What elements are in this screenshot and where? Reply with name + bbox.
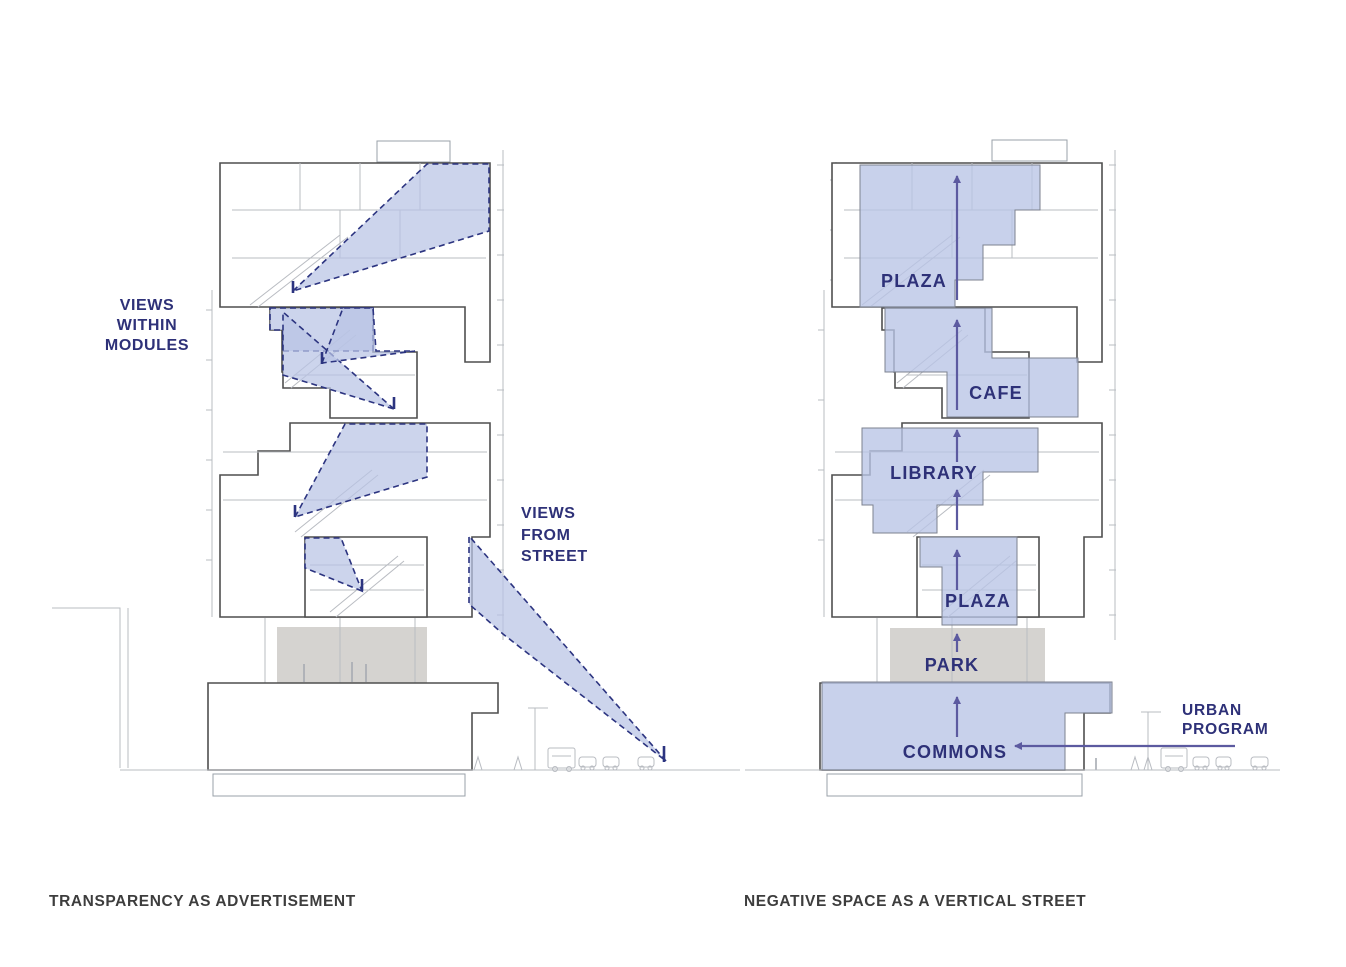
plaza-lower-label: PLAZA (945, 591, 1011, 612)
car-icon (603, 757, 619, 770)
left-diagram-caption: TRANSPARENCY AS ADVERTISEMENT (49, 893, 356, 911)
car-icon (1251, 757, 1268, 770)
tree-icon (1131, 757, 1152, 770)
views-from-street-label: VIEWS FROM STREET (521, 503, 588, 568)
label-line: MODULES (93, 336, 201, 356)
right-diagram-caption: NEGATIVE SPACE AS A VERTICAL STREET (744, 893, 1086, 911)
left-facade-line (206, 290, 212, 617)
car-icon (1216, 757, 1231, 770)
label-line: PROGRAM (1182, 720, 1269, 739)
views-within-modules-label: VIEWS WITHIN MODULES (93, 296, 201, 356)
car-icon (1193, 757, 1209, 770)
library-label: LIBRARY (890, 463, 978, 484)
bus-icon (548, 748, 575, 772)
street-lamp-icon (528, 708, 548, 770)
podium-base (213, 774, 465, 796)
right-facade-ticks (1109, 150, 1116, 640)
tree-icon (474, 757, 522, 770)
label-line: VIEWS (93, 296, 201, 316)
label-line: STREET (521, 546, 588, 568)
label-line: FROM (521, 525, 588, 547)
car-icon (579, 757, 596, 770)
podium-base (827, 774, 1082, 796)
bus-icon (1161, 748, 1187, 772)
label-line: URBAN (1182, 701, 1269, 720)
urban-program-label: URBAN PROGRAM (1182, 701, 1269, 739)
label-line: VIEWS (521, 503, 588, 525)
label-line: WITHIN (93, 316, 201, 336)
cafe-label: CAFE (969, 383, 1023, 404)
roof-head-box (377, 141, 450, 162)
diagram-canvas: VIEWS WITHIN MODULES VIEWS FROM STREET P… (0, 0, 1346, 967)
section-drawings (0, 0, 1346, 967)
street-lamp-icon (1141, 712, 1161, 770)
view-cone-street (469, 536, 666, 761)
park-label: PARK (925, 655, 979, 676)
podium (208, 683, 498, 770)
left-context-lines (52, 608, 128, 768)
roof-head-box (992, 140, 1067, 161)
left-facade-ticks (497, 150, 504, 640)
commons-label: COMMONS (903, 742, 1007, 763)
plaza-top-label: PLAZA (881, 271, 947, 292)
car-icon (638, 757, 654, 770)
